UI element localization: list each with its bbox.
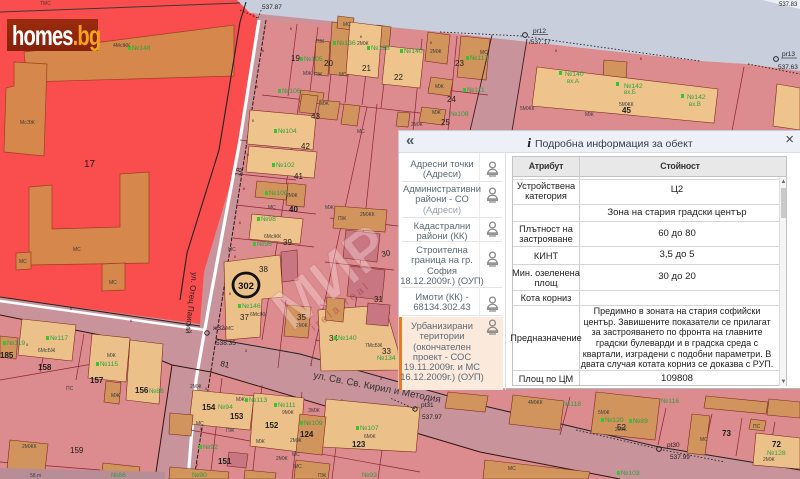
svg-text:153: 153 [230,412,244,421]
svg-text:2МЖК: 2МЖК [22,444,37,450]
svg-text:537.97: 537.97 [422,414,442,421]
svg-text:МС: МС [508,466,516,472]
svg-text:№92: №92 [203,444,218,451]
svg-text:124: 124 [300,430,314,439]
svg-text:5МЖ: 5МЖ [598,410,610,416]
svg-text:2МЖ: 2МЖ [296,323,308,329]
svg-text:2МЖ: 2МЖ [290,438,302,444]
svg-text:159: 159 [70,446,84,455]
svg-text:МС: МС [339,72,347,78]
svg-text:№106: №106 [282,88,301,95]
svg-text:№136: №136 [337,40,356,47]
svg-text:151: 151 [218,457,232,466]
svg-text:ТМС: ТМС [40,1,51,7]
svg-text:157: 157 [90,376,104,385]
svg-text:73: 73 [722,429,731,438]
svg-text:5МЖК: 5МЖК [619,102,634,108]
svg-text:№86: №86 [111,472,126,479]
svg-text:2МЖ: 2МЖ [276,456,288,462]
svg-text:МС: МС [19,259,27,265]
svg-text:МС: МС [292,452,300,458]
svg-text:pr13: pr13 [782,51,795,58]
svg-text:/537.17: /537.17 [529,39,551,46]
svg-text:к: к [70,306,72,311]
svg-text:2МЖ: 2МЖ [615,427,627,433]
svg-text:№113: №113 [249,397,267,404]
svg-text:№148: №148 [132,45,151,52]
svg-text:pr12: pr12 [533,28,546,35]
svg-text:МС: МС [226,326,234,332]
svg-text:к: к [239,220,241,225]
svg-text:42: 42 [301,142,310,151]
svg-text:6МсБЖ: 6МсБЖ [38,348,56,354]
svg-text:537.87: 537.87 [262,4,282,11]
svg-text:72: 72 [772,440,781,449]
svg-text:№94: №94 [218,404,233,411]
svg-text:№96: №96 [257,241,272,248]
svg-text:58.m: 58.m [30,473,41,479]
svg-text:МС: МС [343,22,351,28]
svg-text:21: 21 [362,64,371,73]
svg-text:к: к [243,186,245,191]
svg-text:156: 156 [135,386,149,395]
svg-text:к: к [360,34,362,39]
svg-text:№107: №107 [360,425,379,432]
svg-text:22: 22 [394,73,403,82]
svg-text:№118: №118 [563,401,581,408]
svg-text:6МсЖК: 6МсЖК [264,234,281,240]
svg-text:185: 185 [0,351,14,360]
svg-text:№98: №98 [261,216,276,223]
svg-text:4МЖК: 4МЖК [528,400,543,406]
svg-text:ПЖ: ПЖ [338,216,347,222]
svg-text:ж32: ж32 [213,325,225,332]
svg-text:35: 35 [297,313,306,322]
svg-text:ПЖ: ПЖ [314,72,323,78]
svg-text:№93: №93 [362,472,377,479]
svg-text:к: к [262,48,264,53]
svg-text:к: к [130,318,132,323]
svg-text:к: к [555,48,557,53]
svg-text:123: 123 [352,440,366,449]
svg-text:МЖ: МЖ [303,71,312,77]
svg-text:№109: №109 [304,420,323,427]
svg-text:МЖ: МЖ [111,393,120,399]
svg-text:39: 39 [283,238,292,247]
svg-text:МС: МС [294,464,302,470]
svg-text:537.99: 537.99 [670,454,690,461]
svg-text:№140: №140 [404,48,423,55]
svg-text:№89: №89 [633,418,648,425]
svg-text:к: к [290,26,292,31]
svg-text:19: 19 [291,54,300,63]
svg-text:537.63: 537.63 [778,64,798,71]
svg-text:МсЭЖ: МсЭЖ [20,120,35,126]
svg-text:pt30: pt30 [667,442,680,449]
svg-text:№115: №115 [100,361,118,368]
svg-text:х: х [245,348,248,353]
svg-text:№117: №117 [50,335,68,342]
svg-text:МЖ: МЖ [585,112,594,118]
svg-text:№142: №142 [624,83,643,90]
svg-text:к: к [430,40,432,45]
svg-text:23: 23 [455,59,464,68]
svg-text:х: х [310,362,313,367]
svg-text:17: 17 [84,159,96,170]
svg-text:№88: №88 [149,388,164,395]
svg-text:41: 41 [294,172,303,181]
svg-text:6МЖ: 6МЖ [364,434,376,440]
svg-text:МС: МС [480,50,488,56]
svg-text:ПС: ПС [753,424,761,430]
svg-text:20: 20 [324,59,333,68]
svg-text:вх.А: вх.А [567,79,579,85]
svg-text:вх.В: вх.В [689,102,701,108]
svg-text:вх.Б: вх.Б [624,90,636,96]
svg-text:2МЖ: 2МЖ [286,193,298,199]
svg-text:2МЖ: 2МЖ [430,49,442,55]
svg-text:№108: №108 [450,111,469,118]
svg-text:№140: №140 [565,71,584,78]
svg-text:152: 152 [265,421,279,430]
svg-text:№146: №146 [242,303,261,310]
svg-text:№102: №102 [276,162,295,169]
svg-text:ПС: ПС [66,386,74,392]
svg-text:МЖ: МЖ [320,101,329,107]
svg-text:МС: МС [700,437,708,443]
svg-text:№120: №120 [605,417,624,424]
svg-text:81: 81 [220,359,231,370]
svg-text:№116: №116 [661,398,679,405]
svg-text:538.35: 538.35 [216,340,236,347]
svg-text:302: 302 [238,281,254,292]
svg-text:№142: №142 [687,94,706,101]
svg-text:2МЖ: 2МЖ [357,41,369,47]
svg-text:ПЖ: ПЖ [316,39,325,45]
svg-text:158: 158 [38,363,52,372]
svg-text:537.83: 537.83 [779,2,798,8]
svg-text:154: 154 [202,403,216,412]
svg-text:№140: №140 [338,335,357,342]
svg-text:МС: МС [228,247,236,253]
svg-text:6МсЖК: 6МсЖК [250,312,267,318]
svg-text:№103: №103 [621,470,640,477]
svg-text:7МсБЖ: 7МсБЖ [365,343,383,349]
svg-text:МЖ: МЖ [236,397,245,403]
svg-text:2МЖ: 2МЖ [763,457,775,463]
svg-text:ЗМЖ: ЗМЖ [308,408,320,414]
svg-text:МС: МС [196,421,204,427]
svg-text:38: 38 [259,265,268,274]
svg-text:к: к [252,118,254,123]
svg-text:к: к [234,254,236,259]
svg-text:МЖ: МЖ [325,205,334,211]
svg-text:№134: №134 [377,355,396,362]
svg-text:2МЖК: 2МЖК [360,212,375,218]
svg-text:к: к [256,84,258,89]
svg-text:№117: №117 [470,55,488,62]
svg-text:2МЖ: 2МЖ [411,122,423,128]
svg-text:к: к [247,152,249,157]
svg-text:31: 31 [374,295,383,304]
svg-text:№105: №105 [304,56,323,63]
svg-text:ПЖ: ПЖ [318,473,327,479]
svg-text:№138: №138 [371,45,390,52]
svg-text:№128: №128 [767,450,786,457]
svg-text:№119: №119 [7,340,25,347]
svg-text:№90: №90 [192,472,207,479]
svg-text:МС: МС [73,247,81,253]
svg-text:МЖ: МЖ [256,439,265,445]
svg-text:2МЖ: 2МЖ [190,384,202,390]
svg-text:№111: №111 [467,87,485,94]
svg-text:МС: МС [268,205,276,211]
svg-text:№104: №104 [278,128,297,135]
svg-text:№111: №111 [278,402,296,409]
svg-text:МЖ: МЖ [107,353,116,359]
svg-text:к: к [229,291,231,296]
svg-text:25: 25 [441,118,450,127]
svg-text:ПЖ: ПЖ [226,428,235,434]
svg-text:МЖ: МЖ [432,110,441,116]
svg-text:МЖ: МЖ [435,84,444,90]
svg-text:5МЖК: 5МЖК [520,106,535,112]
svg-text:40: 40 [289,205,298,214]
svg-text:МС: МС [109,280,117,286]
svg-text:24: 24 [447,95,456,104]
svg-text:37: 37 [240,313,249,322]
svg-text:4МсЖК: 4МсЖК [113,43,130,49]
svg-text:9МЖ: 9МЖ [282,410,294,416]
svg-text:МС: МС [357,129,365,135]
svg-text:43: 43 [311,112,320,121]
svg-text:к: к [640,56,642,61]
